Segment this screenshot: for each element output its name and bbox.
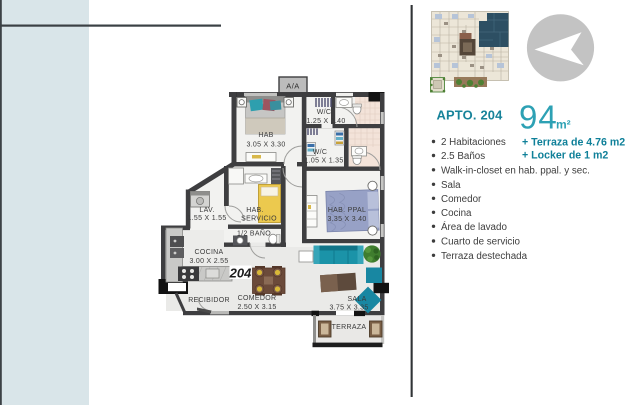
svg-text:Área de lavado: Área de lavado xyxy=(441,222,507,233)
svg-text:COCINA: COCINA xyxy=(194,249,223,256)
svg-text:Terraza destechada: Terraza destechada xyxy=(441,251,528,262)
svg-text:HAB: HAB xyxy=(258,132,273,139)
svg-text:2.5 Baños: 2.5 Baños xyxy=(441,151,485,162)
svg-text:RECIBIDOR: RECIBIDOR xyxy=(188,297,230,304)
svg-text:A/A: A/A xyxy=(286,82,300,91)
svg-text:HAB. PPAL: HAB. PPAL xyxy=(328,207,366,214)
svg-text:2.50 X 3.15: 2.50 X 3.15 xyxy=(237,304,276,311)
svg-text:HAB.: HAB. xyxy=(246,207,264,214)
svg-text:APTO. 204: APTO. 204 xyxy=(437,108,504,123)
svg-text:1/2 BAÑO: 1/2 BAÑO xyxy=(237,229,271,238)
svg-text:1.25 X 1.40: 1.25 X 1.40 xyxy=(306,118,345,125)
svg-text:2 Habitaciones: 2 Habitaciones xyxy=(441,137,506,148)
svg-text:COMEDOR: COMEDOR xyxy=(238,295,277,302)
svg-text:Cuarto de servicio: Cuarto de servicio xyxy=(441,237,521,248)
svg-text:1.05 X 1.35: 1.05 X 1.35 xyxy=(304,158,343,165)
svg-text:LAV.: LAV. xyxy=(199,207,214,214)
svg-text:Walk-in-closet en hab. ppal. y: Walk-in-closet en hab. ppal. y sec. xyxy=(441,165,590,176)
svg-text:TERRAZA: TERRAZA xyxy=(332,324,367,331)
svg-text:Sala: Sala xyxy=(441,180,461,191)
svg-text:m²: m² xyxy=(556,118,571,132)
svg-text:3.00 X 2.55: 3.00 X 2.55 xyxy=(189,258,228,265)
svg-text:SALA: SALA xyxy=(347,296,366,303)
svg-text:3.05 X 3.30: 3.05 X 3.30 xyxy=(246,142,285,149)
svg-text:+ Terraza de 4.76 m2: + Terraza de 4.76 m2 xyxy=(522,137,625,149)
svg-text:204: 204 xyxy=(229,266,252,281)
svg-text:3.75 X 3.35: 3.75 X 3.35 xyxy=(329,305,368,312)
svg-text:94: 94 xyxy=(519,99,558,136)
svg-text:Cocina: Cocina xyxy=(441,208,472,219)
svg-text:1.55 X 1.55: 1.55 X 1.55 xyxy=(187,215,226,222)
svg-text:W/C: W/C xyxy=(317,109,332,116)
svg-text:3.35 X 3.40: 3.35 X 3.40 xyxy=(327,216,366,223)
svg-text:Comedor: Comedor xyxy=(441,194,482,205)
svg-text:+ Locker de 1 m2: + Locker de 1 m2 xyxy=(522,150,608,162)
svg-text:W/C: W/C xyxy=(313,149,328,156)
svg-text:SERVICIO: SERVICIO xyxy=(241,216,277,223)
